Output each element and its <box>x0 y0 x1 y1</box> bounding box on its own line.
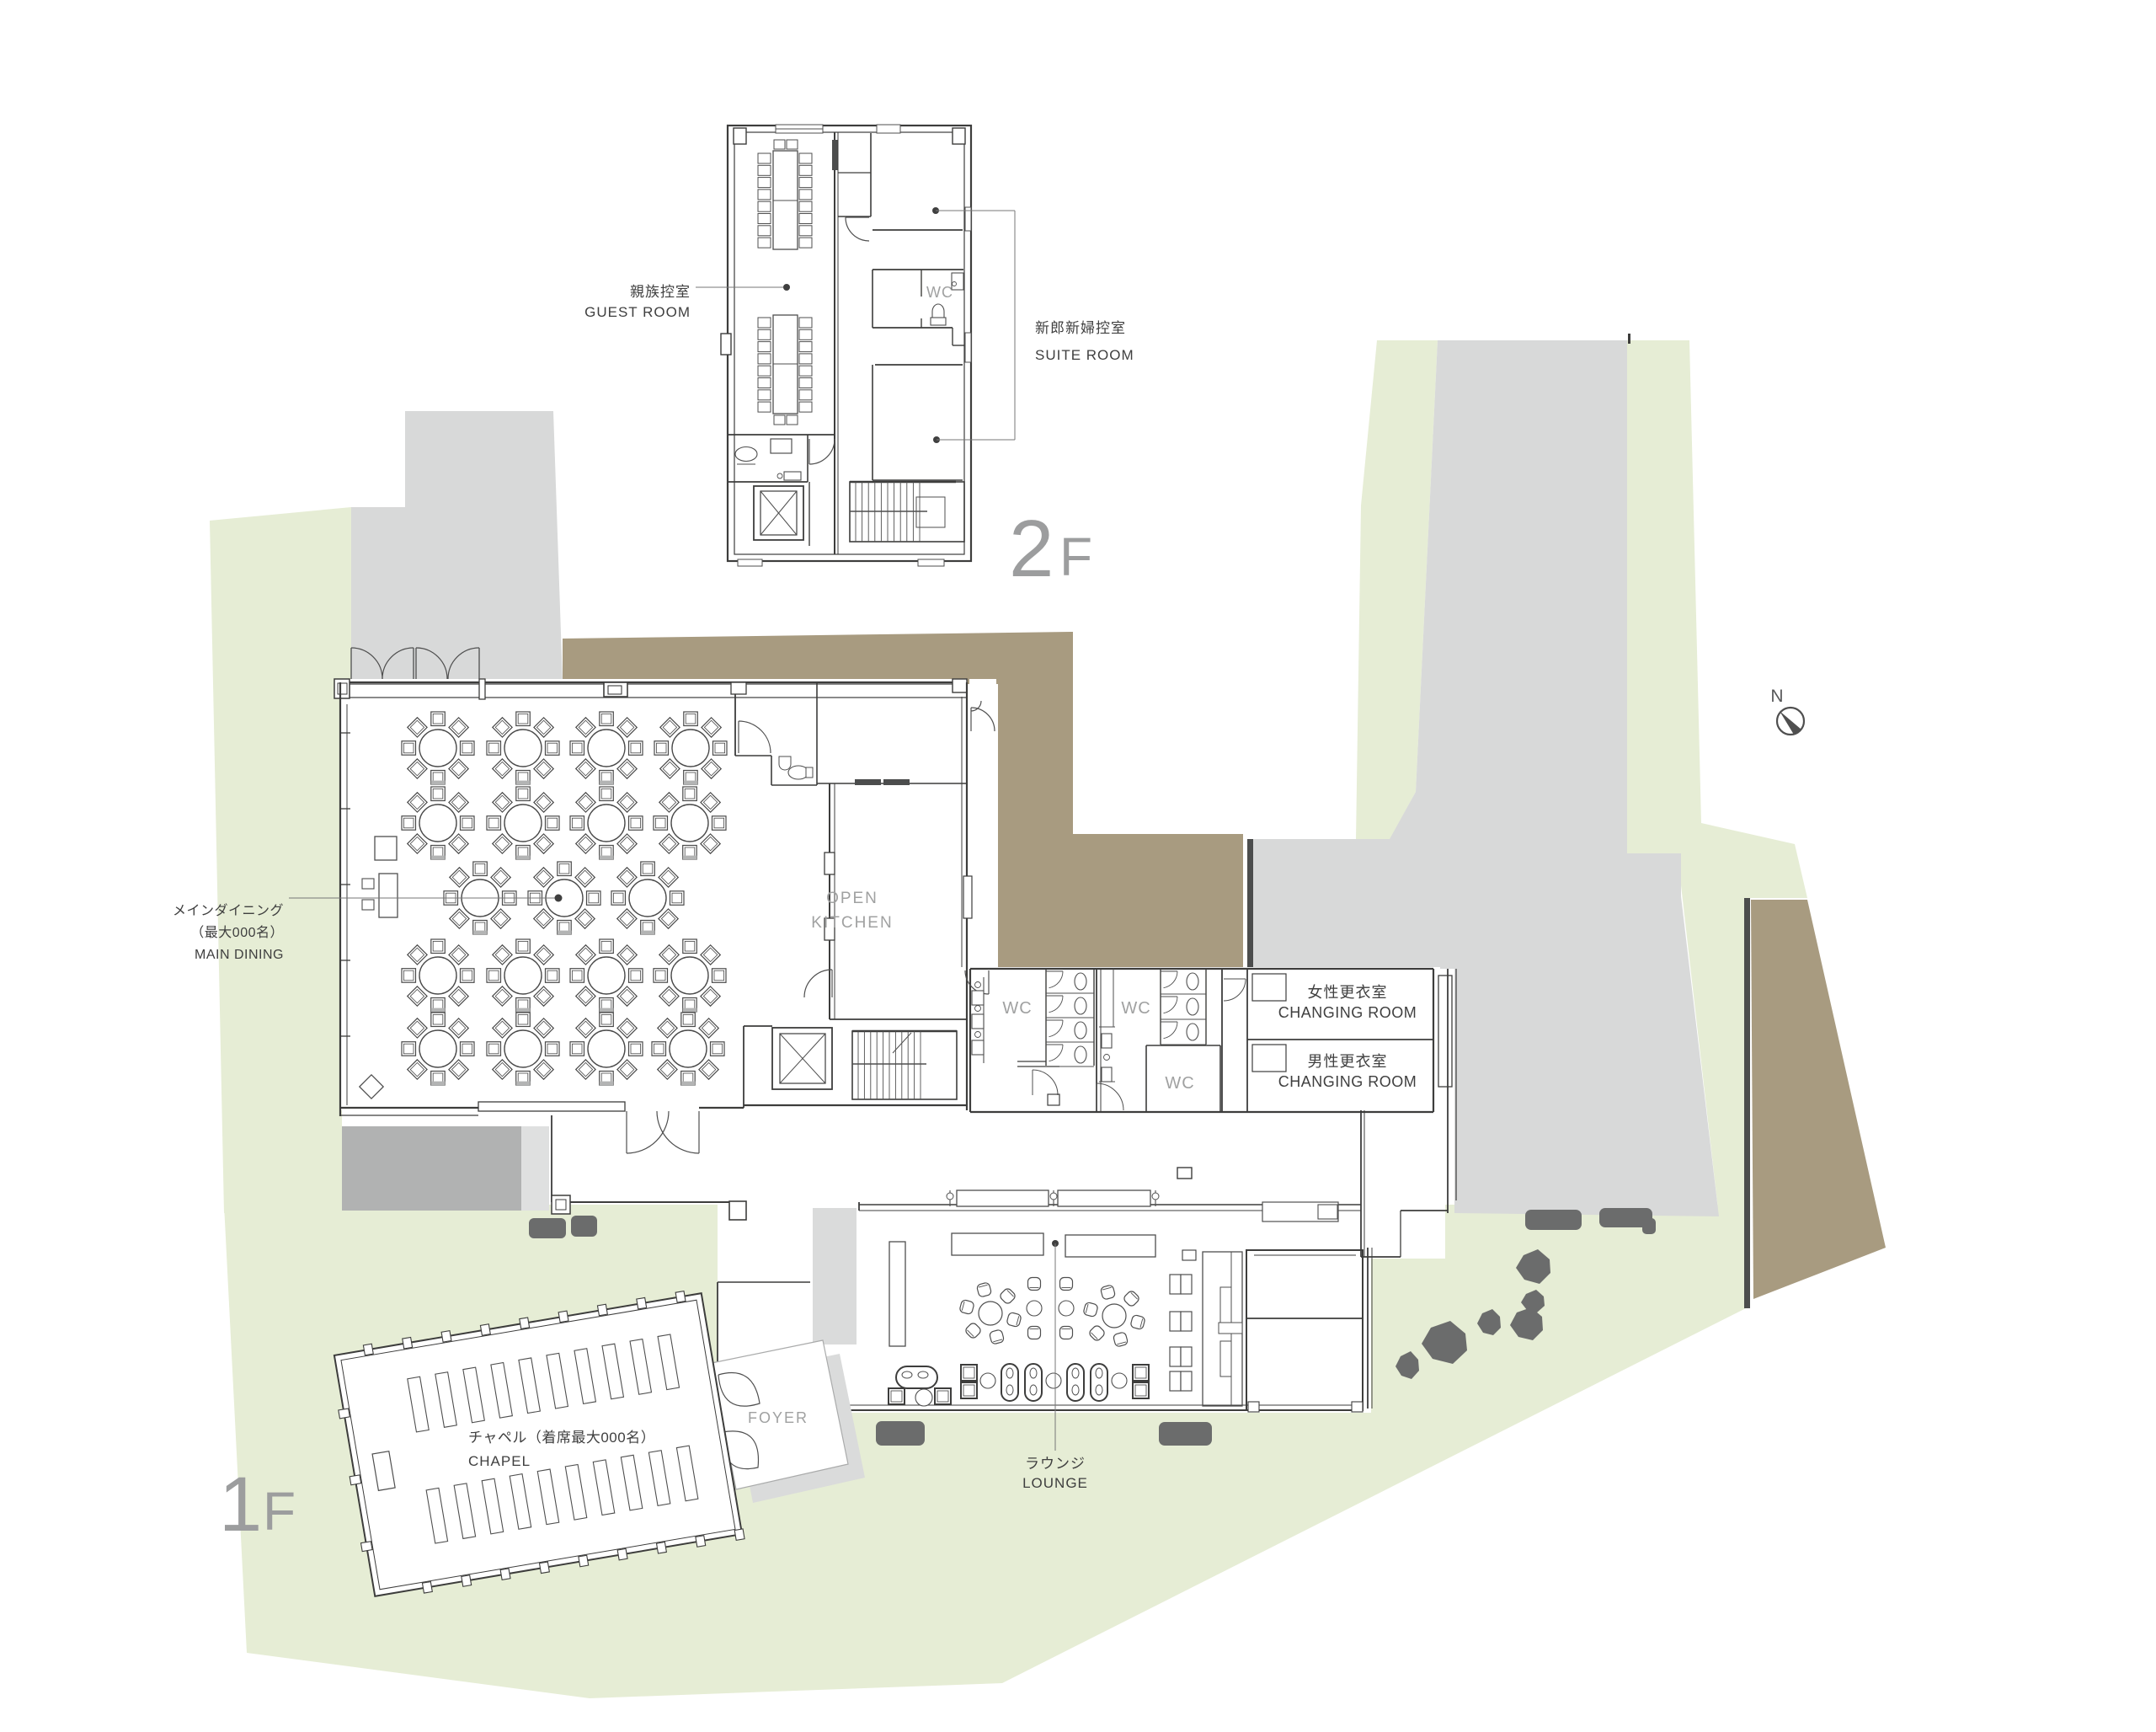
svg-text:FOYER: FOYER <box>748 1409 808 1426</box>
svg-text:メインダイニング: メインダイニング <box>173 903 284 918</box>
svg-text:新郎新婦控室: 新郎新婦控室 <box>1035 320 1126 336</box>
svg-text:KITCHEN: KITCHEN <box>811 914 893 932</box>
svg-text:男性更衣室: 男性更衣室 <box>1308 1053 1388 1070</box>
svg-text:WC: WC <box>926 284 953 301</box>
svg-text:GUEST ROOM: GUEST ROOM <box>584 304 691 320</box>
svg-text:2: 2 <box>1009 504 1054 594</box>
svg-text:CHANGING ROOM: CHANGING ROOM <box>1278 1004 1417 1021</box>
svg-text:CHAPEL: CHAPEL <box>468 1453 531 1469</box>
svg-text:親族控室: 親族控室 <box>630 284 691 300</box>
svg-text:SUITE ROOM: SUITE ROOM <box>1035 347 1134 363</box>
svg-text:女性更衣室: 女性更衣室 <box>1308 984 1388 1001</box>
svg-text:（最大000名）: （最大000名） <box>190 925 284 940</box>
svg-text:チャペル（着席最大000名）: チャペル（着席最大000名） <box>468 1430 655 1446</box>
svg-text:OPEN: OPEN <box>826 890 878 907</box>
svg-text:WC: WC <box>1002 999 1032 1018</box>
svg-text:WC: WC <box>1121 999 1150 1018</box>
svg-text:WC: WC <box>1165 1074 1194 1093</box>
svg-text:F: F <box>263 1481 296 1542</box>
svg-text:ラウンジ: ラウンジ <box>1025 1456 1086 1472</box>
svg-text:MAIN DINING: MAIN DINING <box>195 948 284 962</box>
svg-text:CHANGING ROOM: CHANGING ROOM <box>1278 1073 1417 1090</box>
svg-text:1: 1 <box>219 1462 262 1548</box>
svg-text:F: F <box>1059 527 1092 587</box>
svg-text:LOUNGE: LOUNGE <box>1022 1475 1088 1491</box>
svg-text:N: N <box>1770 687 1783 706</box>
